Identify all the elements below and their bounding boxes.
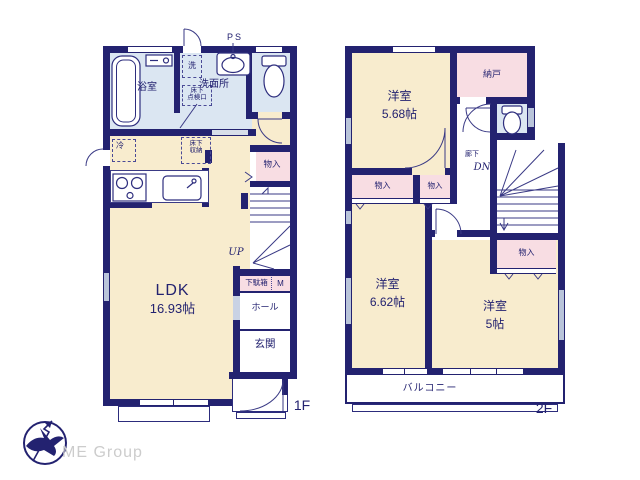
label-balcony: バルコニー <box>380 383 480 395</box>
label-bedroom2-size: 6.62帖 <box>346 296 429 310</box>
floor2-notch <box>535 46 565 150</box>
window <box>383 368 427 375</box>
wall <box>250 145 297 152</box>
window <box>345 211 352 224</box>
window-tick <box>470 368 471 375</box>
label-bathroom: 浴室 <box>127 82 167 94</box>
label-closet-a: 物入 <box>352 181 413 190</box>
label-ldk-size: 16.93帖 <box>130 302 215 317</box>
wall <box>282 379 288 395</box>
label-shoebox: 下駄箱 <box>241 279 272 288</box>
wall <box>250 181 297 187</box>
wall <box>246 53 252 115</box>
threshold <box>212 129 248 136</box>
window <box>345 118 352 144</box>
label-washer: 洗 <box>183 61 201 70</box>
label-dn: DN <box>468 162 496 174</box>
wall <box>229 372 297 379</box>
wall <box>490 140 497 233</box>
label-closet-c: 物入 <box>497 248 556 257</box>
label-bedroom2: 洋室 <box>350 278 425 292</box>
wall <box>413 175 420 204</box>
wall <box>490 133 535 140</box>
label-underfloor-storage: 床下 収納 <box>182 140 210 155</box>
label-bedroom1-size: 5.68帖 <box>362 108 437 122</box>
label-ldk: LDK <box>135 282 210 300</box>
label-meter: M <box>273 279 288 288</box>
wall <box>240 291 290 293</box>
wall <box>174 53 180 113</box>
label-closet-b: 物入 <box>420 182 450 191</box>
label-bedroom3: 洋室 <box>455 300 535 314</box>
room-toilet-1f <box>252 53 290 115</box>
door-gap <box>435 230 457 237</box>
closet-c-slide <box>497 268 556 274</box>
window <box>558 290 565 340</box>
label-underfloor-access: 床下 点検口 <box>183 87 211 102</box>
door-gap <box>103 149 110 167</box>
compass-logo-icon <box>24 421 66 464</box>
label-corridor: 廊下 <box>458 151 486 159</box>
hall-door-gap <box>233 296 240 320</box>
wall <box>490 233 565 240</box>
porch-step <box>236 412 286 419</box>
window-tick <box>496 368 497 375</box>
window <box>527 108 535 127</box>
door-gap <box>412 168 445 175</box>
room-toilet-2f <box>497 104 527 133</box>
wall <box>490 240 497 274</box>
balcony-rail <box>352 404 558 412</box>
label-hall: ホール <box>244 302 286 312</box>
floorplan-canvas: 浴室 洗 洗面所 床下 点検口 冷 床下 収納 物入 下駄箱 M ホール 玄関 … <box>0 0 640 480</box>
window <box>140 399 208 406</box>
room-stairs-1f <box>250 187 290 269</box>
door-gap <box>258 112 282 119</box>
label-up: UP <box>224 247 248 259</box>
label-floor2: 2F <box>530 400 558 416</box>
deck <box>118 406 210 422</box>
label-bedroom1: 洋室 <box>362 90 437 104</box>
label-fridge: 冷 <box>114 141 126 150</box>
kitchen-counter <box>110 170 209 203</box>
window <box>103 273 110 301</box>
wall <box>241 193 248 209</box>
window <box>128 46 172 53</box>
door-gap <box>183 46 201 53</box>
label-storage-2f: 納戸 <box>462 69 522 79</box>
closet-a-slide <box>352 198 413 204</box>
wall <box>425 204 432 368</box>
label-ps: PS <box>224 32 246 42</box>
label-closet-1f: 物入 <box>254 160 290 170</box>
porch-box <box>232 379 288 412</box>
wall <box>240 269 297 276</box>
window <box>256 46 282 53</box>
wall <box>240 329 290 331</box>
window <box>443 368 523 375</box>
door-gap <box>460 97 486 104</box>
label-entrance: 玄関 <box>246 338 284 350</box>
window <box>393 46 435 53</box>
label-bedroom3-size: 5帖 <box>455 318 535 332</box>
wall <box>450 53 457 204</box>
window-tick <box>404 368 405 375</box>
window-tick <box>173 399 174 406</box>
logo-company-name: ME Group <box>62 444 152 462</box>
room-stairs-2f <box>497 140 558 233</box>
label-floor1: 1F <box>289 397 315 413</box>
